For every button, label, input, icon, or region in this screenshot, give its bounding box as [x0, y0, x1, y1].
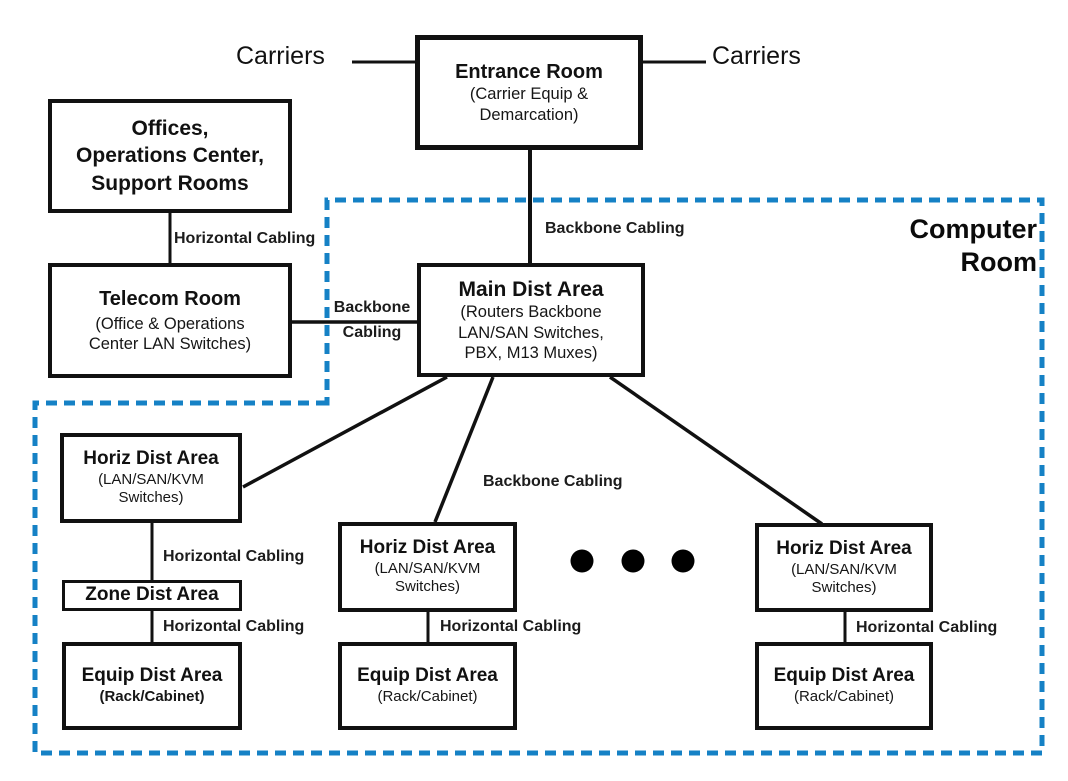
node-title: Horiz Dist Area — [360, 537, 496, 560]
node-title-line: Operations Center, — [76, 142, 264, 169]
node-horiz-dist-area-mid: Horiz Dist Area (LAN/SAN/KVM Switches) — [338, 522, 517, 612]
node-subtitle-line: Switches) — [811, 579, 876, 597]
computer-room-label: Computer Room — [845, 213, 1037, 279]
node-horiz-dist-area-left: Horiz Dist Area (LAN/SAN/KVM Switches) — [60, 433, 242, 523]
edge-main-hda-right — [610, 377, 822, 524]
node-subtitle-line: PBX, M13 Muxes) — [465, 343, 598, 363]
edge-label-backbone-cabling: Backbone Cabling — [545, 220, 685, 238]
computer-room-label-line1: Computer — [910, 214, 1038, 244]
edge-main-hda-left — [243, 377, 447, 487]
edge-label-horizontal-cabling: Horizontal Cabling — [174, 230, 315, 248]
topology-diagram: Carriers Carriers Computer Room Entrance… — [0, 0, 1068, 781]
node-offices: Offices, Operations Center, Support Room… — [48, 99, 292, 213]
node-subtitle-line: Switches) — [118, 489, 183, 507]
node-title: Main Dist Area — [458, 277, 603, 302]
edge-label-line: Backbone — [330, 299, 414, 317]
edge-label-backbone-cabling: Backbone Cabling — [483, 473, 623, 491]
node-telecom-room: Telecom Room (Office & Operations Center… — [48, 263, 292, 378]
node-zone-dist-area: Zone Dist Area — [62, 580, 242, 611]
edge-main-hda-mid — [435, 377, 493, 522]
node-entrance-room: Entrance Room (Carrier Equip & Demarcati… — [415, 35, 643, 150]
node-subtitle-line: Demarcation) — [479, 105, 578, 125]
node-title: Zone Dist Area — [85, 584, 218, 607]
node-subtitle-line: (LAN/SAN/KVM — [98, 471, 204, 489]
node-title-line: Offices, — [131, 115, 208, 142]
node-subtitle-line: Switches) — [395, 578, 460, 596]
edge-label-backbone-cabling-stacked: Backbone Cabling — [330, 299, 414, 342]
node-subtitle-line: (Routers Backbone — [460, 302, 601, 322]
node-subtitle-line: (Carrier Equip & — [470, 84, 588, 104]
edge-label-horizontal-cabling: Horizontal Cabling — [163, 618, 304, 636]
node-title: Equip Dist Area — [774, 665, 915, 688]
node-main-dist-area: Main Dist Area (Routers Backbone LAN/SAN… — [417, 263, 645, 377]
node-subtitle-line: Center LAN Switches) — [89, 334, 251, 354]
node-title: Equip Dist Area — [357, 665, 498, 688]
ellipsis-dot — [622, 550, 645, 573]
node-subtitle-line: LAN/SAN Switches, — [458, 323, 604, 343]
carriers-label-right: Carriers — [712, 42, 801, 71]
node-subtitle-line: (LAN/SAN/KVM — [375, 560, 481, 578]
node-title: Telecom Room — [99, 287, 241, 311]
carriers-label-left: Carriers — [236, 42, 325, 71]
ellipsis-dot — [571, 550, 594, 573]
node-equip-dist-area-right: Equip Dist Area (Rack/Cabinet) — [755, 642, 933, 730]
node-title-line: Support Rooms — [91, 170, 249, 197]
ellipsis-dot — [672, 550, 695, 573]
edge-label-horizontal-cabling: Horizontal Cabling — [856, 619, 997, 637]
node-title: Horiz Dist Area — [776, 538, 912, 561]
node-subtitle-line: (Rack/Cabinet) — [99, 688, 204, 706]
node-title: Horiz Dist Area — [83, 448, 219, 471]
computer-room-label-line2: Room — [961, 247, 1038, 277]
node-equip-dist-area-mid: Equip Dist Area (Rack/Cabinet) — [338, 642, 517, 730]
node-title: Equip Dist Area — [82, 665, 223, 688]
node-subtitle-line: (LAN/SAN/KVM — [791, 561, 897, 579]
node-subtitle-line: (Rack/Cabinet) — [794, 688, 894, 706]
node-equip-dist-area-left: Equip Dist Area (Rack/Cabinet) — [62, 642, 242, 730]
ellipsis-dots — [571, 550, 695, 573]
node-subtitle-line: (Office & Operations — [95, 314, 244, 334]
edge-label-line: Cabling — [330, 324, 414, 342]
node-title: Entrance Room — [455, 60, 603, 84]
edge-label-horizontal-cabling: Horizontal Cabling — [440, 618, 581, 636]
node-horiz-dist-area-right: Horiz Dist Area (LAN/SAN/KVM Switches) — [755, 523, 933, 612]
edge-label-horizontal-cabling: Horizontal Cabling — [163, 548, 304, 566]
node-subtitle-line: (Rack/Cabinet) — [377, 688, 477, 706]
